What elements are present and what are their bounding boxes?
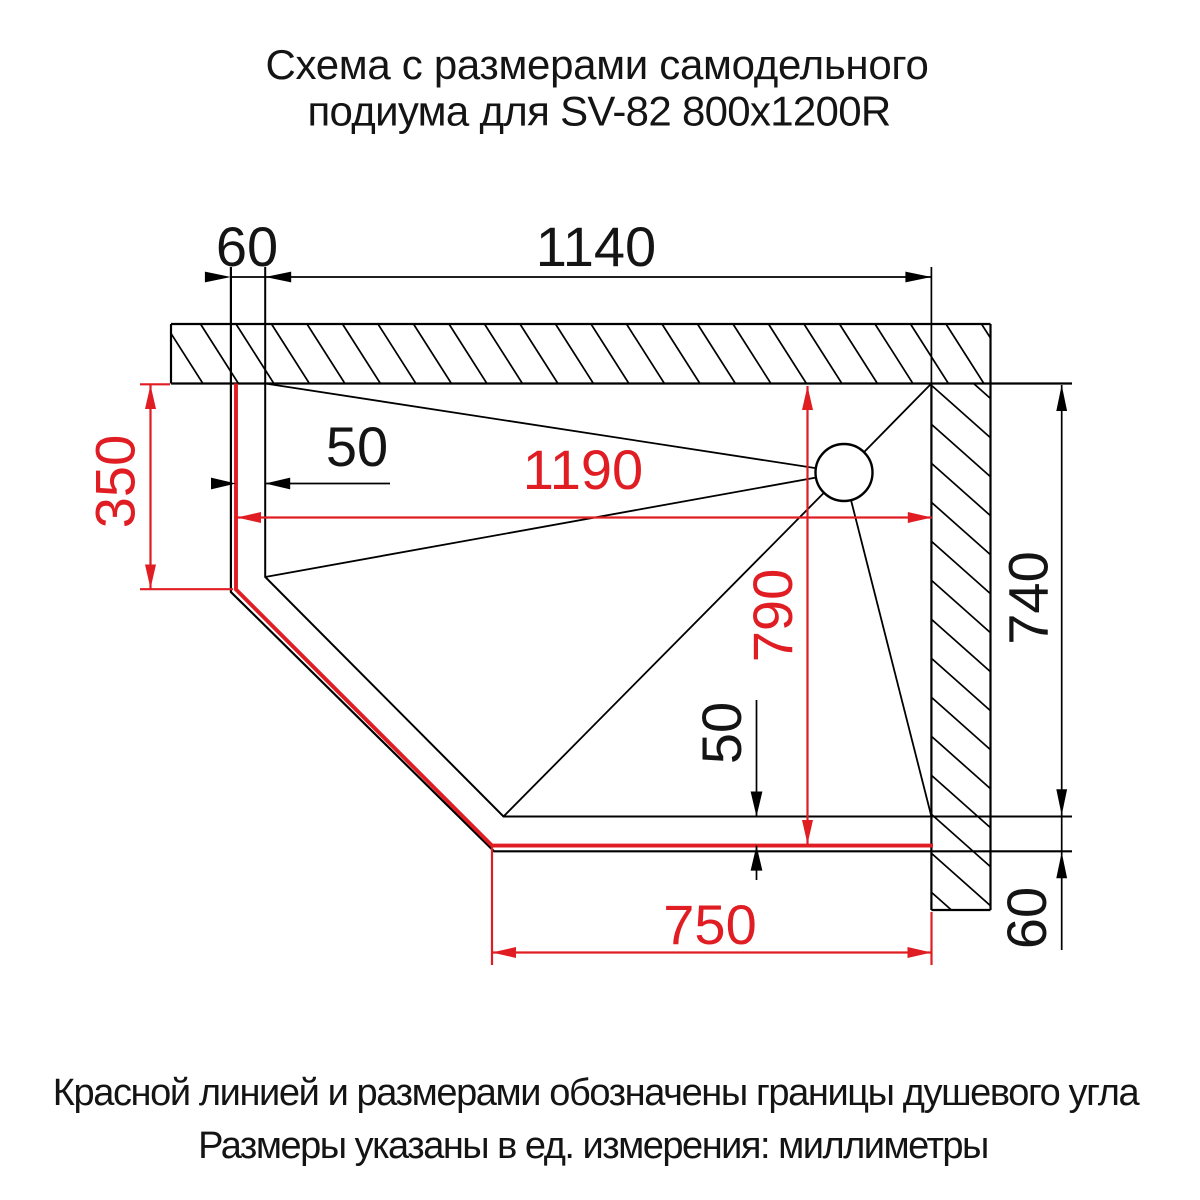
- svg-text:60: 60: [995, 887, 1058, 949]
- svg-text:50: 50: [326, 415, 388, 478]
- svg-text:750: 750: [663, 893, 756, 956]
- svg-text:50: 50: [690, 702, 753, 764]
- svg-text:740: 740: [997, 551, 1060, 644]
- svg-text:1140: 1140: [536, 215, 656, 278]
- svg-text:Размеры указаны в ед. измерени: Размеры указаны в ед. измерения: миллиме…: [198, 1125, 988, 1167]
- svg-text:подиума для SV-82 800x1200R: подиума для SV-82 800x1200R: [307, 88, 890, 135]
- svg-text:350: 350: [83, 435, 146, 528]
- svg-text:60: 60: [216, 215, 278, 278]
- svg-text:1190: 1190: [523, 438, 643, 501]
- svg-text:Красной линией и размерами обо: Красной линией и размерами обозначены гр…: [53, 1072, 1141, 1114]
- svg-text:790: 790: [741, 569, 804, 662]
- svg-text:Схема с размерами самодельного: Схема с размерами самодельного: [265, 41, 928, 88]
